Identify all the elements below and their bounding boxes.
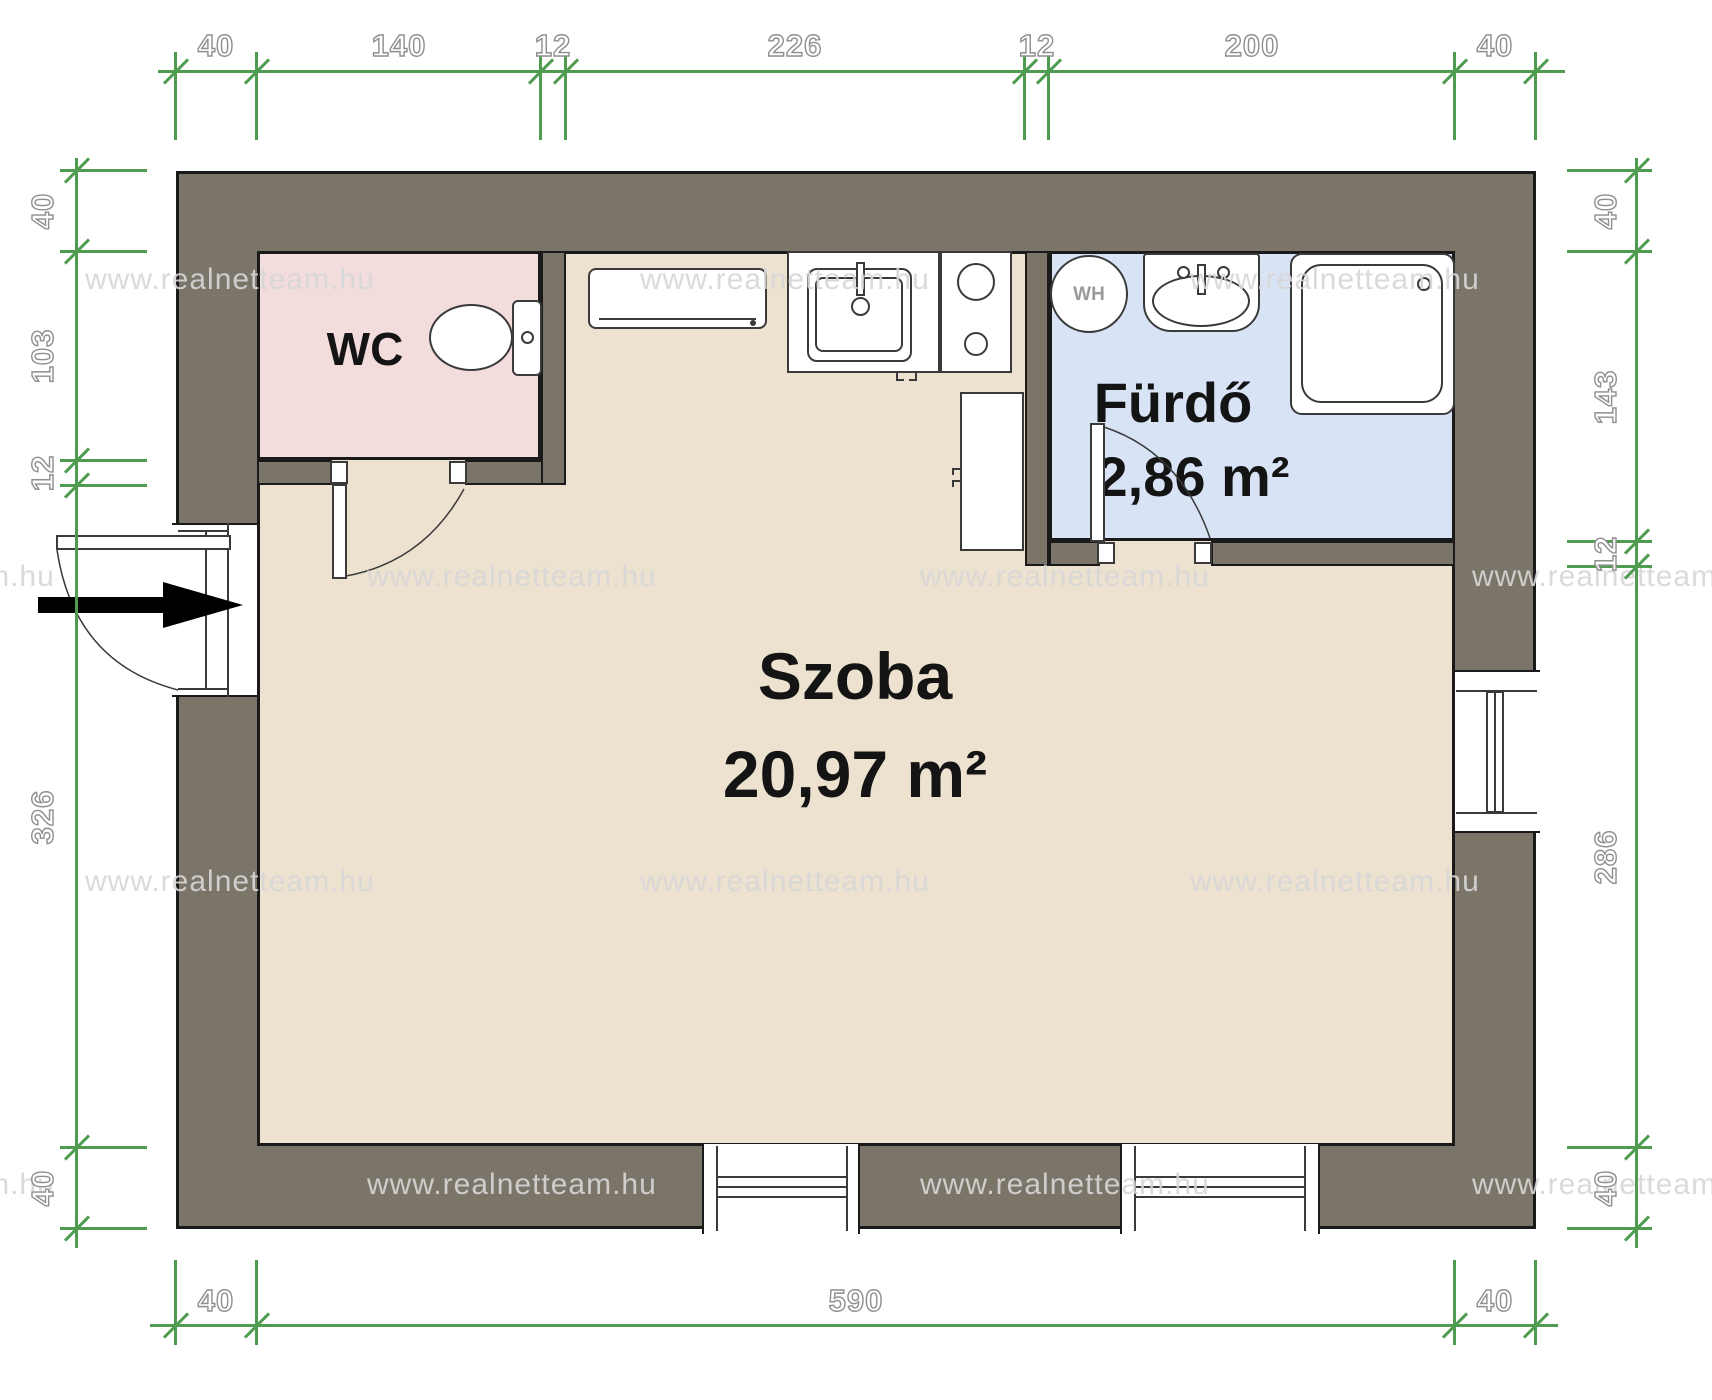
floor-plan: WH bbox=[0, 0, 1712, 1400]
dim-label-top-0: 40 bbox=[161, 26, 271, 66]
bottom-window-1 bbox=[717, 1146, 847, 1231]
dim-label-top-2: 12 bbox=[498, 26, 608, 66]
wc-door-leaf bbox=[333, 485, 346, 578]
dim-label-left-2: 12 bbox=[23, 418, 63, 528]
dim-label-right-0: 40 bbox=[1586, 156, 1626, 266]
dim-label-top-4: 12 bbox=[982, 26, 1092, 66]
watermark: www.realnetteam.hu bbox=[640, 263, 930, 297]
dim-label-bottom-0: 40 bbox=[161, 1281, 271, 1321]
dim-line-right bbox=[1635, 158, 1638, 1248]
furdo-door-leaf bbox=[1091, 424, 1104, 541]
dim-label-right-3: 286 bbox=[1586, 802, 1626, 912]
entry-arrow bbox=[38, 582, 243, 628]
door-window-symbols bbox=[0, 0, 1712, 1400]
dim-label-left-3: 326 bbox=[23, 762, 63, 872]
dim-label-left-0: 40 bbox=[23, 156, 63, 266]
entry-door-leaf bbox=[57, 536, 230, 549]
furdo-door-swing-arc bbox=[1104, 427, 1210, 538]
watermark: www.realnetteam.hu bbox=[0, 560, 55, 594]
dim-label-bottom-1: 590 bbox=[801, 1281, 911, 1321]
dim-label-left-4: 40 bbox=[23, 1133, 63, 1243]
dim-label-top-6: 40 bbox=[1440, 26, 1550, 66]
dim-line-bottom bbox=[150, 1324, 1558, 1327]
watermark: www.realnetteam.hu bbox=[1190, 865, 1480, 899]
fridge-hinge-marks bbox=[953, 469, 960, 487]
watermark: www.realnetteam.hu bbox=[367, 1168, 657, 1202]
watermark: www.realnetteam.hu bbox=[640, 865, 930, 899]
dim-label-left-1: 103 bbox=[23, 301, 63, 411]
dim-label-right-4: 40 bbox=[1586, 1133, 1626, 1243]
watermark: www.realnetteam.hu bbox=[1190, 263, 1480, 297]
dim-line-top bbox=[158, 70, 1565, 73]
watermark: www.realnetteam.hu bbox=[85, 263, 375, 297]
wc-door-jamb-left bbox=[331, 462, 347, 483]
watermark: www.realnetteam.hu bbox=[85, 865, 375, 899]
dim-line-left bbox=[75, 158, 78, 1248]
dim-label-top-3: 226 bbox=[740, 26, 850, 66]
dim-label-bottom-2: 40 bbox=[1440, 1281, 1550, 1321]
counter-marks bbox=[897, 373, 960, 487]
watermark: www.realnetteam.hu bbox=[920, 560, 1210, 594]
dim-label-right-1: 143 bbox=[1586, 342, 1626, 452]
wc-door-jamb-right bbox=[450, 462, 466, 483]
watermark: www.realnetteam.hu bbox=[367, 560, 657, 594]
right-window bbox=[1456, 691, 1537, 813]
furdo-door bbox=[1091, 424, 1211, 563]
dim-label-top-1: 140 bbox=[344, 26, 454, 66]
dim-label-top-5: 200 bbox=[1197, 26, 1307, 66]
watermark: www.realnetteam.hu bbox=[920, 1168, 1210, 1202]
dim-label-right-2: 12 bbox=[1586, 499, 1626, 609]
